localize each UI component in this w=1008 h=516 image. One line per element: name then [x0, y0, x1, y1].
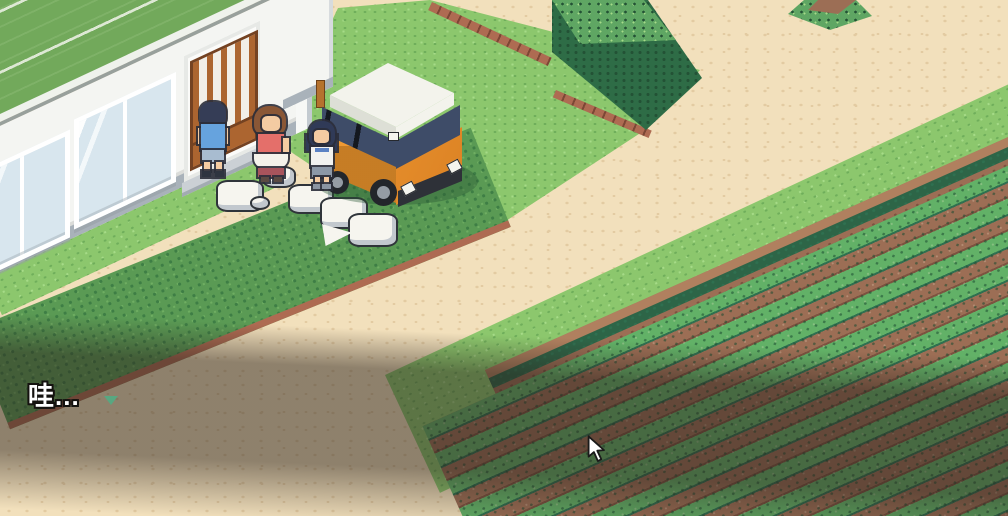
grass-mound — [788, 0, 872, 30]
woman-shoe — [274, 177, 282, 182]
boy-shirt — [201, 124, 225, 150]
boy-shoe — [215, 171, 224, 177]
grass-mound-soil — [808, 0, 858, 14]
boy-npc[interactable] — [198, 102, 228, 180]
girl-shorts — [312, 167, 332, 177]
woman-face — [262, 116, 280, 131]
car-hubcap — [377, 186, 390, 199]
woman-arm — [283, 138, 289, 152]
boy-hair — [200, 102, 226, 126]
car-mirror — [388, 132, 399, 141]
boy-leg — [216, 162, 222, 171]
girl-face — [314, 130, 329, 143]
dialogue-continue-icon[interactable] — [104, 396, 118, 405]
game-viewport[interactable]: 哇... — [0, 0, 1008, 516]
dialogue-text[interactable]: 哇... — [28, 376, 80, 413]
woman-shoe — [261, 177, 269, 182]
car-wheel-front — [370, 179, 397, 206]
woman-top — [258, 134, 284, 156]
woman-skirt-hem — [258, 168, 284, 177]
stepping-stone-chip — [250, 196, 270, 210]
girl-leg — [324, 177, 329, 184]
girl-collar — [315, 148, 329, 152]
boy-shorts — [202, 150, 224, 162]
girl-npc[interactable] — [306, 121, 338, 191]
woman-npc[interactable] — [250, 104, 294, 186]
hedge-block — [540, 0, 715, 140]
girl-shoe — [322, 184, 331, 189]
stepping-stone — [348, 213, 398, 247]
boy-leg — [204, 162, 210, 171]
girl-shoe — [313, 184, 322, 189]
mouse-cursor-icon — [587, 435, 607, 463]
girl-leg — [315, 177, 320, 184]
boy-shoe — [202, 171, 211, 177]
